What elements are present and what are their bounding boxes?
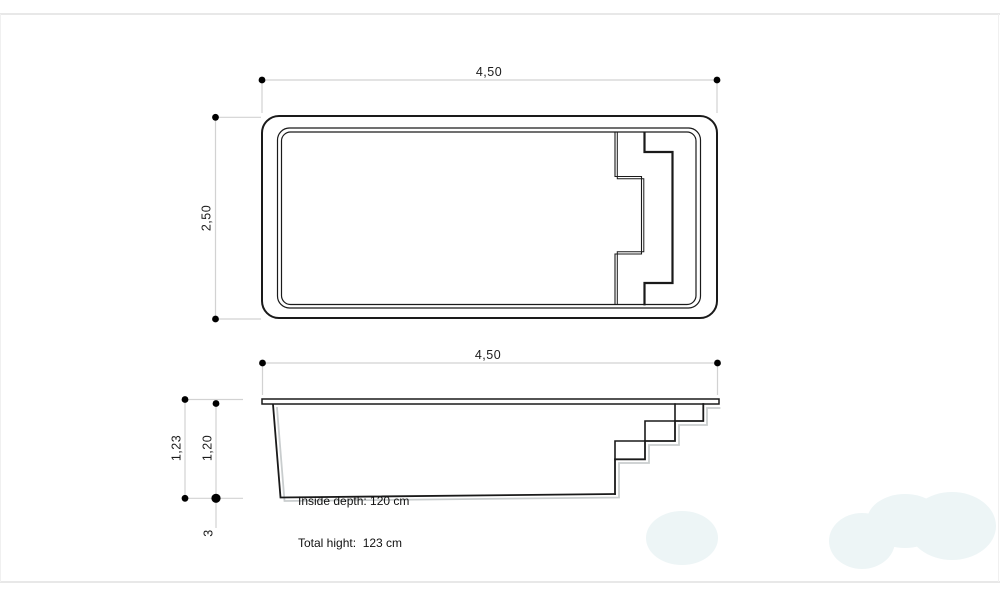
- plan-width-dim-label: 4,50: [474, 66, 504, 79]
- section-width-dim-label: 4,50: [473, 349, 503, 362]
- plan-height-dim-label: 2,50: [201, 203, 214, 233]
- drawing-canvas: 4,50 2,50 4,50 1,23 1,20 3 Inside depth:…: [0, 0, 1000, 600]
- pool-technical-drawing: [0, 0, 1000, 600]
- plan-inner-edge-outer: [278, 128, 701, 308]
- annotation-total-height: Total hight: 123 cm: [298, 536, 409, 550]
- section-annotation: Inside depth: 120 cm Total hight: 123 cm: [298, 466, 409, 578]
- section-deck-slab: [262, 399, 719, 404]
- plan-outer-rim: [262, 116, 717, 318]
- section-stairs-front: [615, 404, 703, 494]
- plan-step-edge-outer: [615, 133, 642, 304]
- annotation-inside-depth: Inside depth: 120 cm: [298, 494, 409, 508]
- plan-view-drawing: [262, 116, 717, 318]
- section-deck-thickness-label: 3: [203, 527, 216, 538]
- plan-step-edge-outer-companion: [617, 133, 644, 304]
- section-total-height-dim-label: 1,23: [171, 433, 184, 463]
- watermark-blobs: [646, 492, 996, 569]
- plan-inner-edge-inner: [282, 132, 697, 305]
- plan-step-edge-inner: [645, 133, 673, 304]
- section-depth-dim-label: 1,20: [202, 433, 215, 463]
- section-dimensions: [185, 363, 718, 528]
